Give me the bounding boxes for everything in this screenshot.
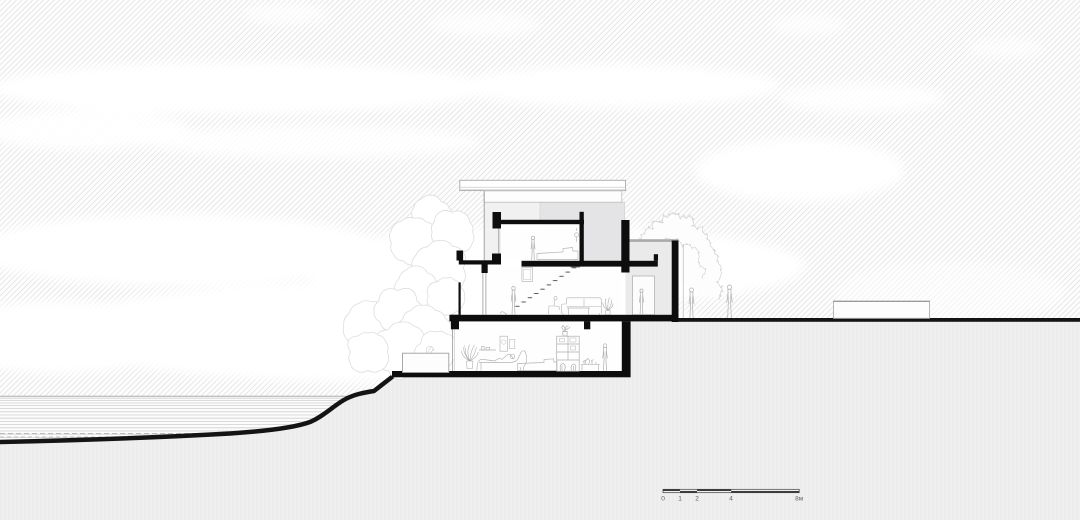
svg-text:1: 1	[678, 496, 682, 503]
svg-text:4: 4	[729, 496, 733, 503]
svg-text:2: 2	[695, 496, 699, 503]
svg-text:8м: 8м	[795, 496, 804, 503]
svg-text:0: 0	[661, 496, 665, 503]
